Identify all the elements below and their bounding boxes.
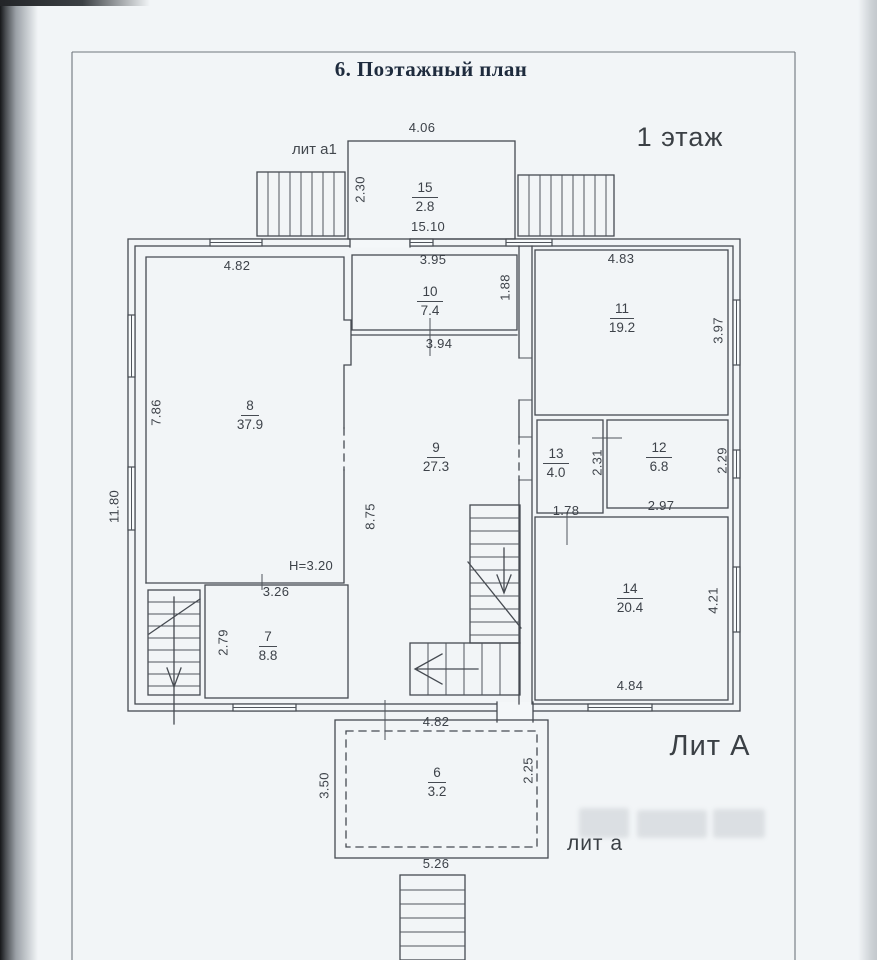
dim-r14-right: 4.21 bbox=[706, 569, 721, 633]
ceiling-height-note: H=3.20 bbox=[279, 558, 343, 573]
room-label-15: 15 2.8 bbox=[393, 179, 457, 216]
dim-r8-left: 7.86 bbox=[149, 381, 164, 445]
dim-annex15-left: 2.30 bbox=[353, 158, 368, 222]
dim-r6-bottom: 5.26 bbox=[404, 856, 468, 871]
dim-r6-right: 2.25 bbox=[521, 739, 536, 803]
building-letter-label: Лит А bbox=[645, 730, 775, 763]
dim-r10-right: 1.88 bbox=[498, 256, 513, 320]
dim-r6-left: 3.50 bbox=[317, 754, 332, 818]
dim-r13-bottom: 1.78 bbox=[534, 503, 598, 518]
staircase-bottom bbox=[400, 875, 465, 960]
dim-r7-left: 2.79 bbox=[216, 611, 231, 675]
dim-r9-left: 8.75 bbox=[363, 485, 378, 549]
staircase-central bbox=[410, 505, 521, 695]
dim-r14-bottom: 4.84 bbox=[598, 678, 662, 693]
room-label-14: 14 20.4 bbox=[598, 580, 662, 617]
dim-r8-top: 4.82 bbox=[205, 258, 269, 273]
dim-top-total: 15.10 bbox=[396, 219, 460, 234]
dim-r13-right: 2.31 bbox=[590, 431, 605, 495]
dim-r6-top: 4.82 bbox=[404, 714, 468, 729]
dim-r7-top: 3.26 bbox=[244, 584, 308, 599]
dim-r11-top: 4.83 bbox=[589, 251, 653, 266]
room-label-9: 9 27.3 bbox=[404, 439, 468, 476]
dim-left-total: 11.80 bbox=[107, 475, 122, 539]
porch-steps-left bbox=[257, 172, 345, 236]
porch-steps-right bbox=[518, 175, 614, 236]
annex-a1-label: лит а1 bbox=[292, 141, 337, 158]
floor-label: 1 этаж bbox=[615, 122, 745, 153]
room-label-7: 7 8.8 bbox=[236, 628, 300, 665]
dim-r9-top: 3.94 bbox=[407, 336, 471, 351]
room-label-6: 6 3.2 bbox=[405, 764, 469, 801]
room-label-13: 13 4.0 bbox=[524, 445, 588, 482]
room-label-8: 8 37.9 bbox=[218, 397, 282, 434]
floor-plan-drawing bbox=[0, 0, 877, 960]
dim-r10-top: 3.95 bbox=[401, 252, 465, 267]
room-label-12: 12 6.8 bbox=[627, 439, 691, 476]
dim-annex15-top: 4.06 bbox=[390, 120, 454, 135]
annex-a-label: лит а bbox=[555, 832, 635, 856]
scanned-floor-plan-page: 6. Поэтажный план 1 этаж Лит А лит а лит… bbox=[0, 0, 877, 960]
dim-r12-right: 2.29 bbox=[715, 429, 730, 493]
dimension-ticks bbox=[262, 318, 622, 740]
room-label-10: 10 7.4 bbox=[398, 283, 462, 320]
room-label-11: 11 19.2 bbox=[590, 300, 654, 337]
dim-r12-bottom: 2.97 bbox=[629, 498, 693, 513]
page-title: 6. Поэтажный план bbox=[231, 57, 631, 82]
dim-r11-right: 3.97 bbox=[711, 299, 726, 363]
